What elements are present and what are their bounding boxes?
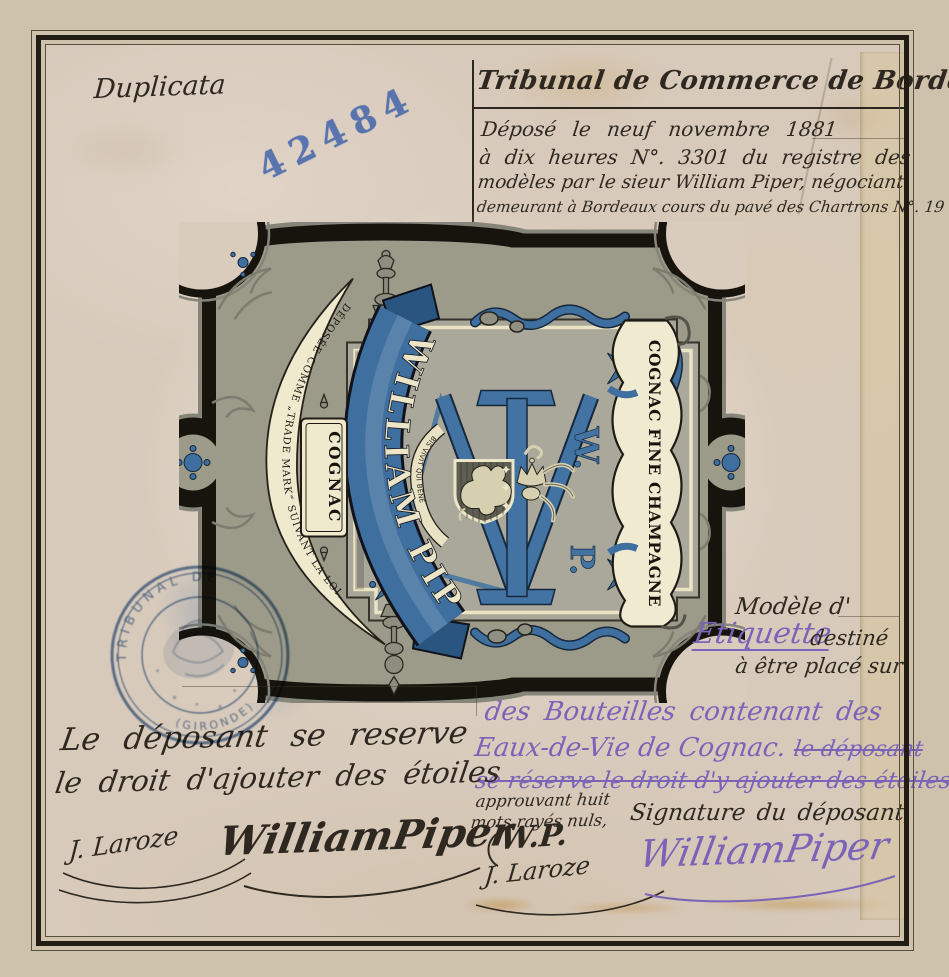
frame-inner-line xyxy=(45,44,900,937)
document-page: Duplicata 42484 Tribunal de Commerce de … xyxy=(0,0,949,977)
